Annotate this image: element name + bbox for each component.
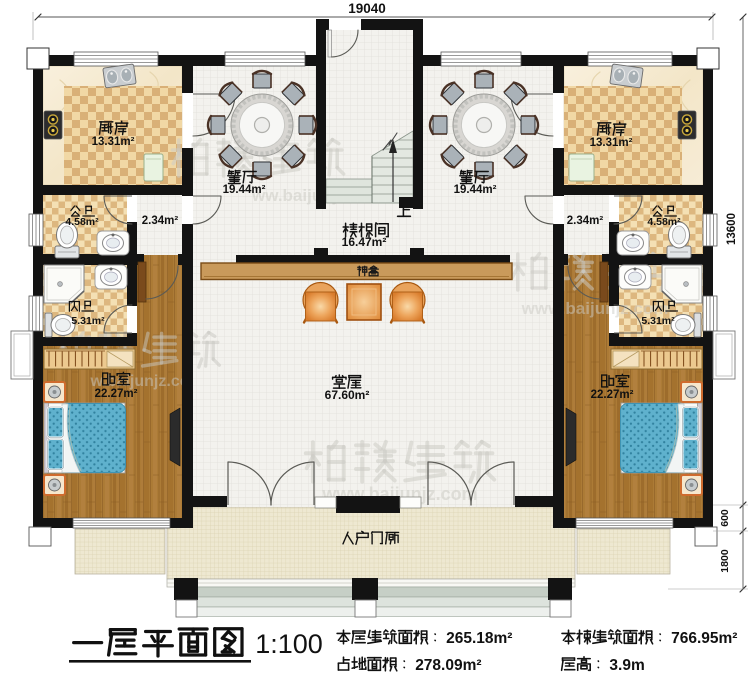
svg-text:1:100: 1:100 (255, 629, 323, 659)
svg-text:766.95m²: 766.95m² (671, 630, 737, 647)
svg-text:3.9m: 3.9m (609, 657, 644, 674)
svg-text:19.44m²: 19.44m² (223, 184, 266, 196)
svg-text:1800: 1800 (719, 549, 731, 573)
svg-text:16.47m²: 16.47m² (342, 235, 387, 249)
svg-text:13.31m²: 13.31m² (92, 136, 135, 148)
svg-text:5.31m²: 5.31m² (641, 315, 675, 327)
svg-text:278.09m²: 278.09m² (415, 657, 481, 674)
svg-text:265.18m²: 265.18m² (446, 630, 512, 647)
svg-text:22.27m²: 22.27m² (591, 389, 634, 401)
svg-text:600: 600 (719, 509, 731, 527)
svg-text:4.58m²: 4.58m² (647, 216, 681, 228)
svg-text:13600: 13600 (726, 213, 738, 245)
svg-text:67.60m²: 67.60m² (325, 388, 370, 402)
svg-text:19040: 19040 (348, 1, 386, 16)
svg-text:5.31m²: 5.31m² (71, 315, 105, 327)
svg-text:4.58m²: 4.58m² (65, 216, 99, 228)
svg-text:19.44m²: 19.44m² (454, 184, 497, 196)
svg-text:2.34m²: 2.34m² (142, 215, 179, 227)
svg-text:2.34m²: 2.34m² (567, 215, 604, 227)
svg-text:22.27m²: 22.27m² (95, 388, 138, 400)
svg-text:13.31m²: 13.31m² (590, 137, 633, 149)
